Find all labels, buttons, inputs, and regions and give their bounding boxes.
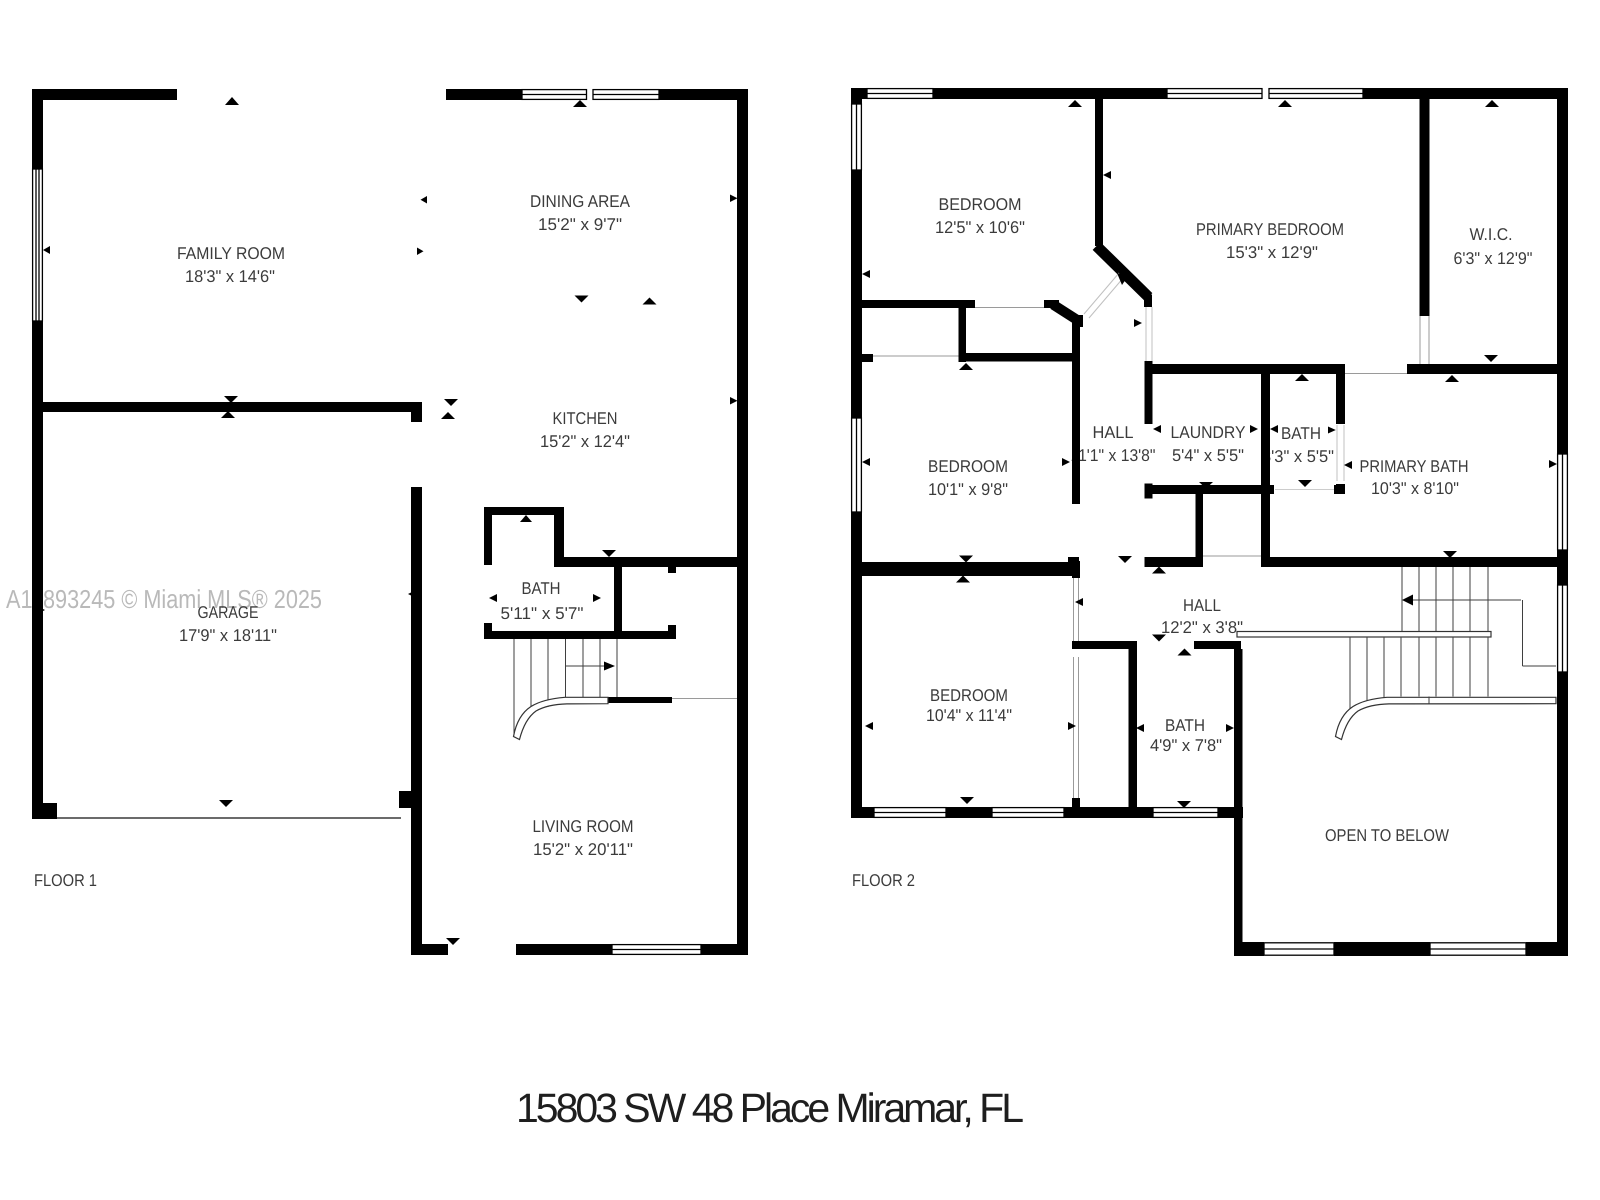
svg-text:6'3" x 12'9": 6'3" x 12'9" bbox=[1454, 249, 1533, 268]
svg-text:15'2" x 9'7": 15'2" x 9'7" bbox=[538, 215, 622, 234]
svg-text:HALL: HALL bbox=[1183, 596, 1221, 615]
svg-text:17'9" x 18'11": 17'9" x 18'11" bbox=[179, 626, 277, 645]
svg-text:15'2" x 20'11": 15'2" x 20'11" bbox=[533, 840, 633, 859]
svg-text:PRIMARY BEDROOM: PRIMARY BEDROOM bbox=[1196, 220, 1344, 239]
svg-text:15803 SW 48 Place Miramar, FL: 15803 SW 48 Place Miramar, FL bbox=[516, 1085, 1024, 1131]
svg-text:15'2" x 12'4": 15'2" x 12'4" bbox=[540, 432, 630, 451]
svg-text:11'1" x 13'8": 11'1" x 13'8" bbox=[1071, 446, 1156, 465]
svg-text:10'4" x 11'4": 10'4" x 11'4" bbox=[926, 706, 1012, 725]
svg-text:5'11" x 5'7": 5'11" x 5'7" bbox=[501, 604, 584, 623]
svg-text:8'3" x 5'5": 8'3" x 5'5" bbox=[1262, 447, 1334, 466]
svg-text:10'1" x 9'8": 10'1" x 9'8" bbox=[928, 480, 1008, 499]
svg-text:GARAGE: GARAGE bbox=[198, 603, 259, 622]
svg-text:BATH: BATH bbox=[1281, 424, 1321, 443]
svg-text:12'2" x 3'8": 12'2" x 3'8" bbox=[1161, 618, 1243, 637]
svg-text:10'3" x 8'10": 10'3" x 8'10" bbox=[1371, 479, 1459, 498]
svg-text:KITCHEN: KITCHEN bbox=[553, 409, 618, 428]
svg-text:FLOOR 2: FLOOR 2 bbox=[852, 871, 915, 890]
svg-text:OPEN TO BELOW: OPEN TO BELOW bbox=[1325, 826, 1449, 845]
svg-text:15'3" x 12'9": 15'3" x 12'9" bbox=[1226, 243, 1318, 262]
svg-text:BEDROOM: BEDROOM bbox=[930, 686, 1008, 705]
svg-text:PRIMARY BATH: PRIMARY BATH bbox=[1360, 457, 1469, 476]
svg-text:W.I.C.: W.I.C. bbox=[1470, 225, 1513, 244]
svg-text:5'4" x 5'5": 5'4" x 5'5" bbox=[1172, 446, 1244, 465]
svg-text:FLOOR 1: FLOOR 1 bbox=[34, 871, 97, 890]
svg-text:FAMILY ROOM: FAMILY ROOM bbox=[177, 244, 285, 263]
svg-text:18'3" x 14'6": 18'3" x 14'6" bbox=[185, 267, 275, 286]
svg-text:LIVING ROOM: LIVING ROOM bbox=[533, 817, 634, 836]
svg-text:4'9" x 7'8": 4'9" x 7'8" bbox=[1150, 736, 1222, 755]
svg-text:BATH: BATH bbox=[522, 579, 561, 598]
svg-text:BEDROOM: BEDROOM bbox=[928, 457, 1008, 476]
svg-text:DINING AREA: DINING AREA bbox=[530, 192, 631, 211]
svg-text:12'5" x 10'6": 12'5" x 10'6" bbox=[935, 218, 1025, 237]
svg-text:BEDROOM: BEDROOM bbox=[939, 195, 1022, 214]
svg-text:BATH: BATH bbox=[1165, 716, 1205, 735]
svg-text:HALL: HALL bbox=[1093, 423, 1134, 442]
svg-text:A11893245 © Miami MLS® 2025: A11893245 © Miami MLS® 2025 bbox=[6, 584, 322, 614]
svg-text:LAUNDRY: LAUNDRY bbox=[1171, 423, 1246, 442]
